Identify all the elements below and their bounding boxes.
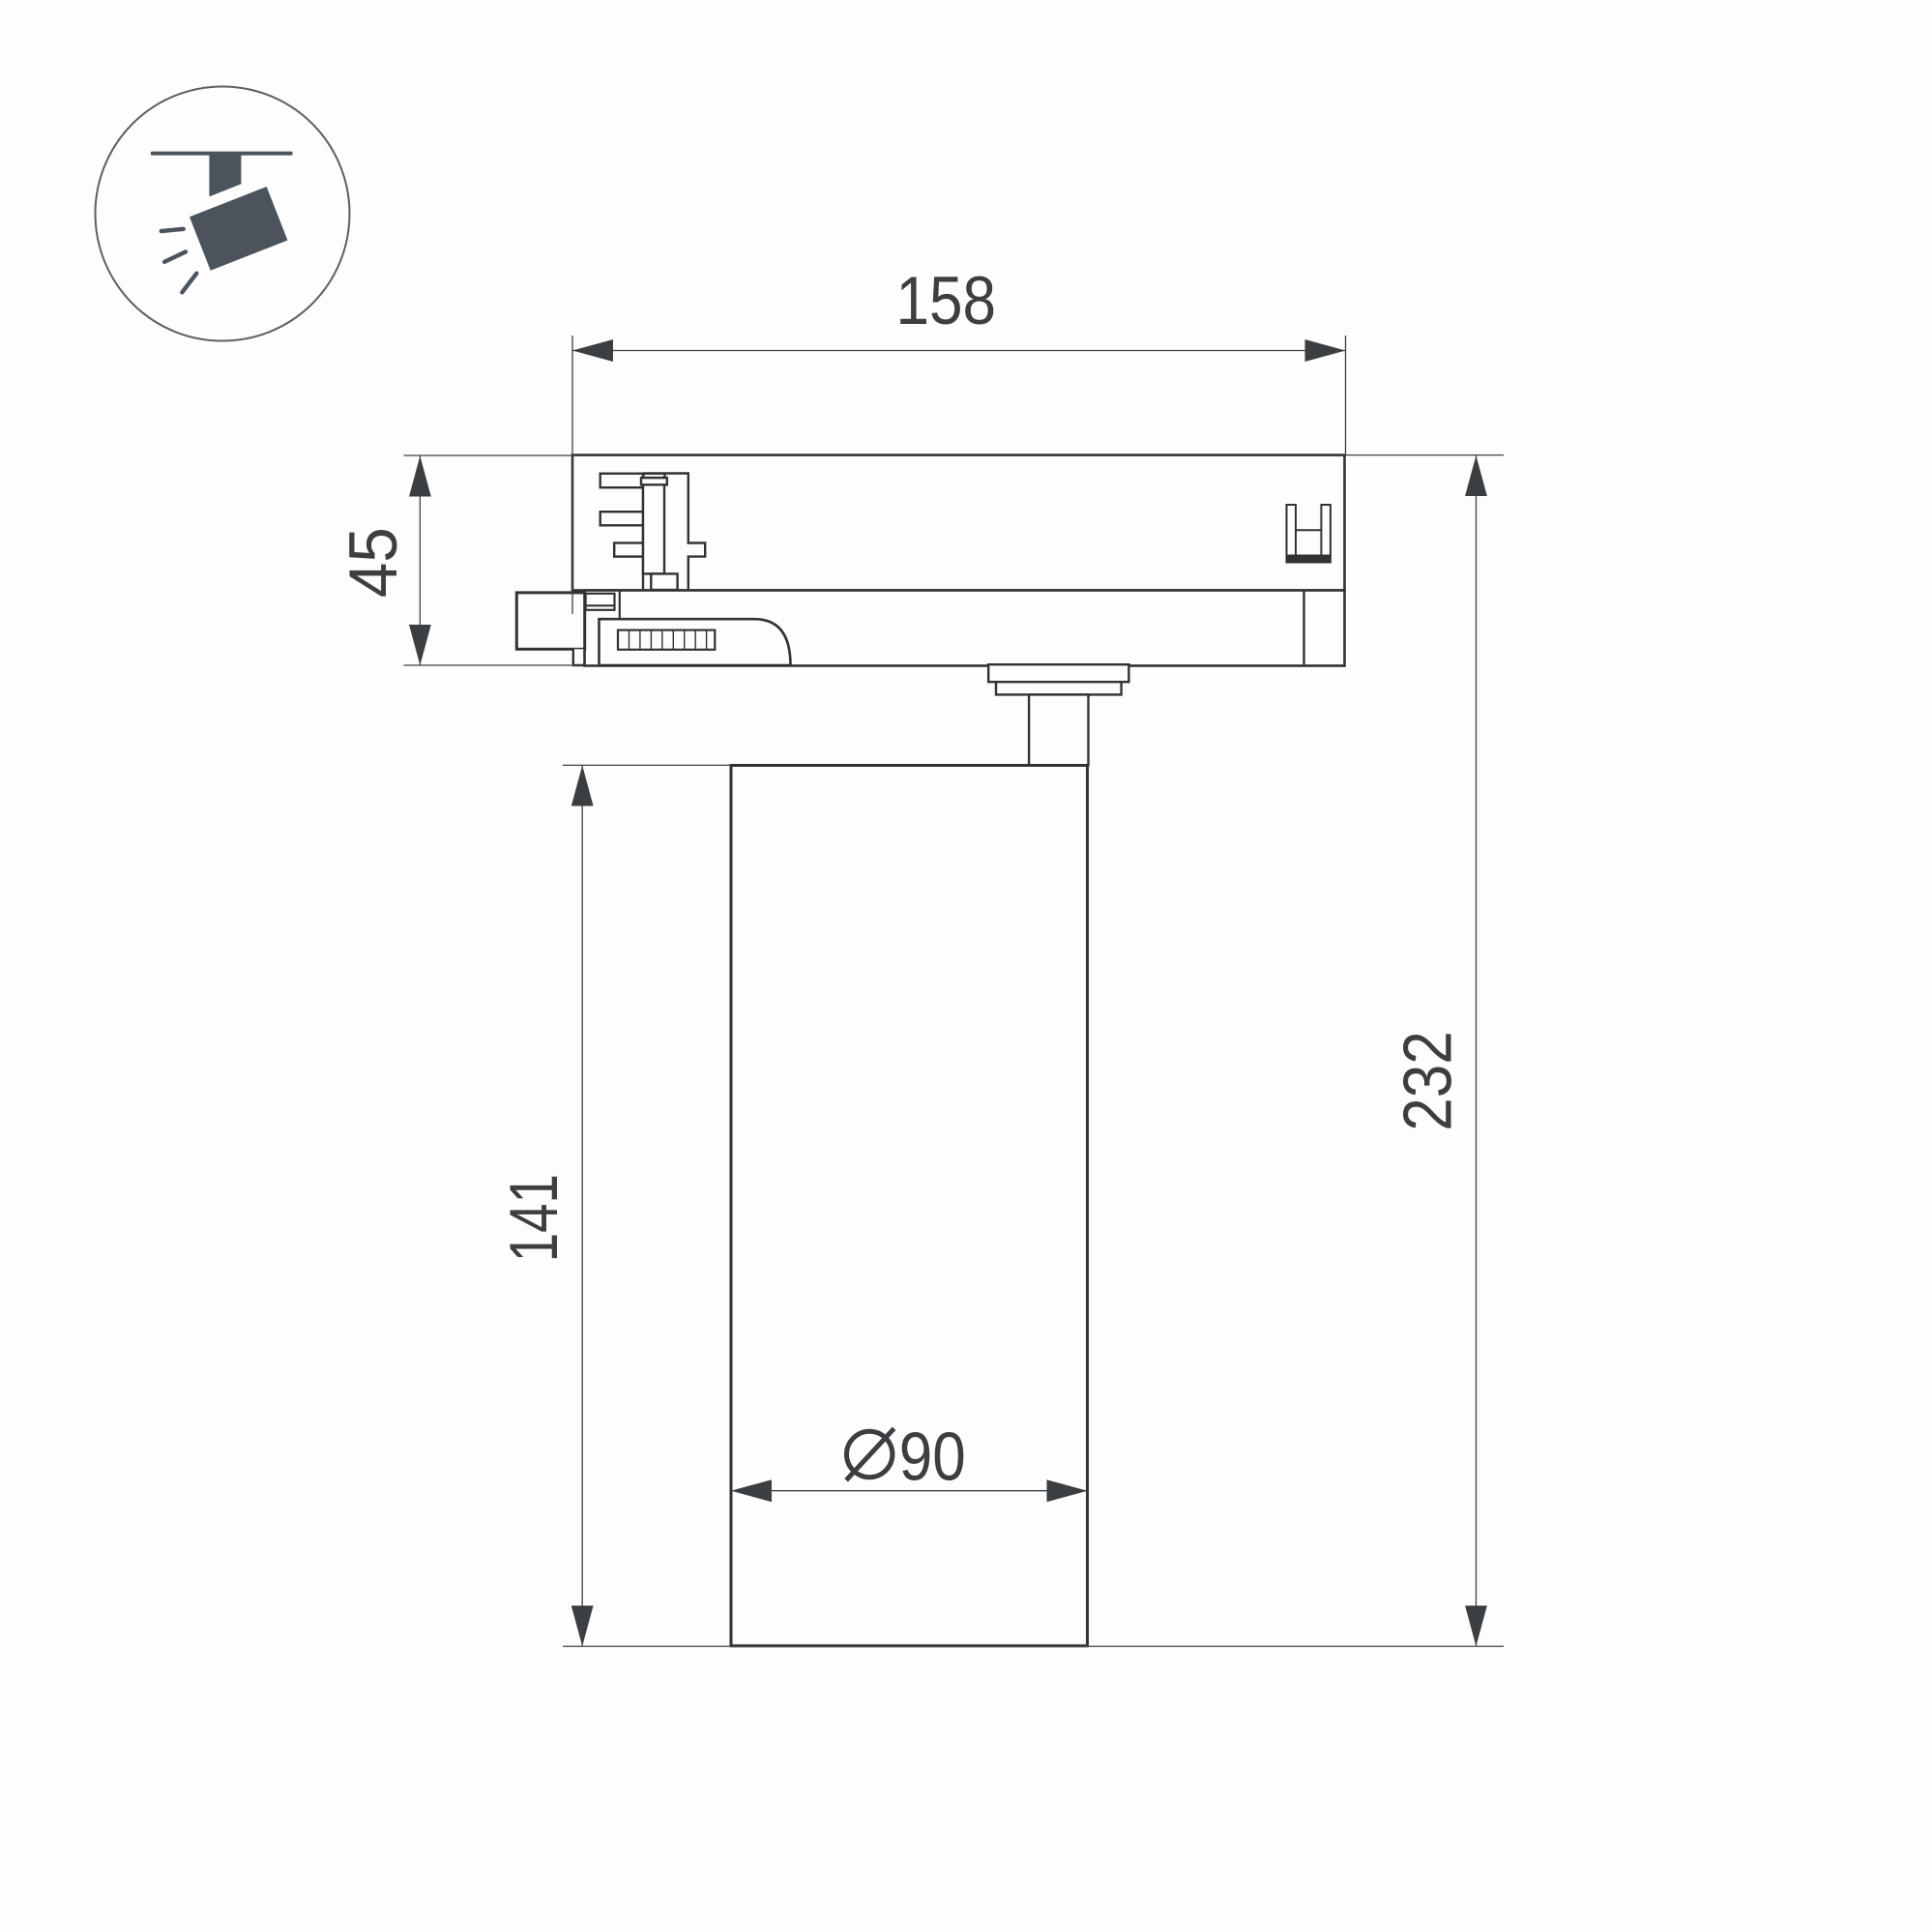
svg-text:232: 232 bbox=[1390, 1031, 1467, 1130]
svg-text:45: 45 bbox=[336, 527, 412, 598]
svg-text:90: 90 bbox=[899, 1420, 966, 1496]
svg-text:158: 158 bbox=[895, 263, 995, 339]
svg-text:141: 141 bbox=[496, 1174, 571, 1262]
